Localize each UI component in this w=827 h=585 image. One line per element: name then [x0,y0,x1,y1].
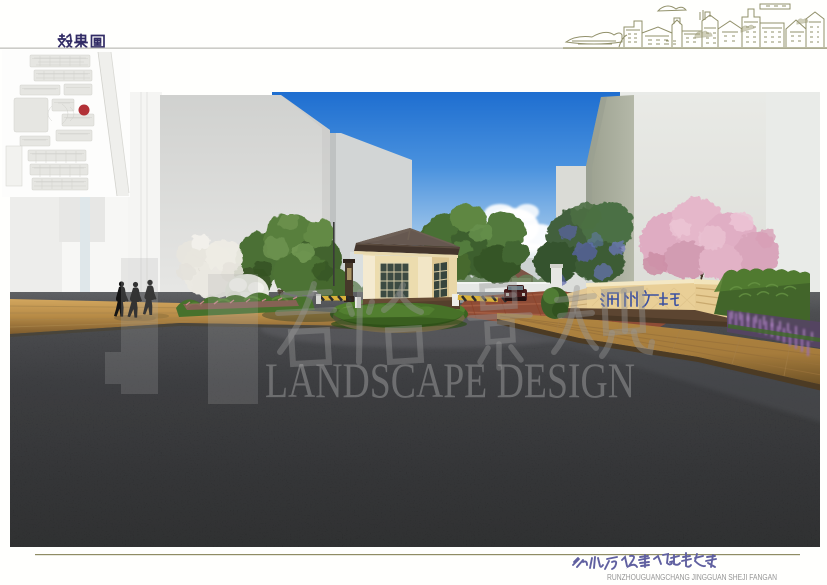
svg-text:LANDSCAPE DESIGN: LANDSCAPE DESIGN [265,352,635,408]
svg-text:RUNZHOUGUANGCHANG JINGGUAN SH: RUNZHOUGUANGCHANG JINGGUAN SHEJI FANGAN [607,573,777,582]
